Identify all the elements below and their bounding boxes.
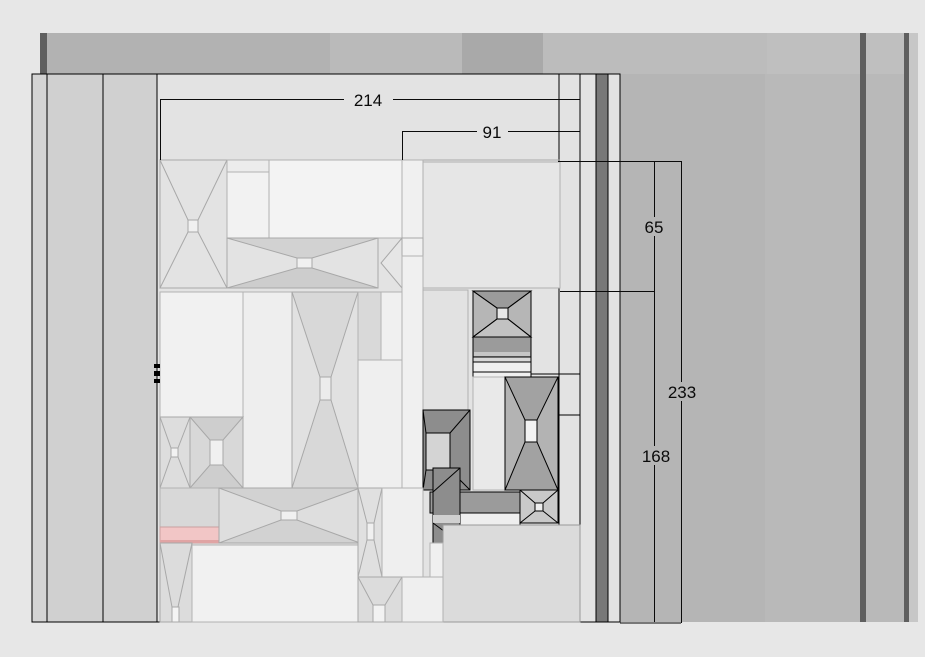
- piece-rect-p[interactable]: [192, 545, 358, 622]
- dim-label-168[interactable]: 168: [642, 447, 670, 466]
- corner-stripe-right-1: [860, 33, 866, 622]
- piece-col-k[interactable]: [402, 256, 423, 488]
- piece-highlighted[interactable]: [160, 527, 219, 543]
- wall-section-stripe[interactable]: [596, 74, 608, 622]
- piece-vhip-2[interactable]: [358, 577, 402, 622]
- cad-viewport[interactable]: 214 91 65 233 168: [0, 0, 925, 657]
- piece-col-h[interactable]: [358, 292, 381, 360]
- piece-col-g[interactable]: [243, 292, 292, 488]
- wall-face-right-2: [765, 74, 918, 622]
- stud-column-1[interactable]: [32, 74, 47, 622]
- piece-col-q[interactable]: [382, 488, 423, 577]
- piece-rect-r[interactable]: [402, 577, 443, 622]
- top-plate-seg-5: [767, 33, 918, 74]
- piece-rect-d[interactable]: [423, 162, 560, 288]
- piece-bowtie-vertical-big[interactable]: [292, 292, 358, 488]
- stud-column-3[interactable]: [103, 74, 157, 622]
- piece-hip-small[interactable]: [520, 490, 558, 523]
- piece-rect-f[interactable]: [160, 292, 243, 417]
- stud-column-2[interactable]: [47, 74, 103, 622]
- piece-col-m[interactable]: [473, 377, 505, 490]
- piece-rect-j[interactable]: [358, 360, 402, 488]
- top-plate-seg-2: [330, 33, 462, 74]
- edge-connector-ticks: [154, 364, 160, 383]
- stud-columns[interactable]: [32, 74, 157, 622]
- corner-stripe-left: [40, 33, 47, 74]
- piece-bowtie-narrow-2[interactable]: [358, 488, 382, 577]
- panel-drawing[interactable]: [32, 74, 620, 622]
- top-plate-seg-4: [543, 33, 767, 74]
- dim-label-91[interactable]: 91: [483, 123, 502, 142]
- dim-label-214[interactable]: 214: [354, 91, 382, 110]
- wall-edge-strip: [909, 33, 918, 622]
- piece-rect-b[interactable]: [269, 160, 402, 238]
- piece-rect-a[interactable]: [227, 172, 269, 238]
- top-plate-seg-3: [462, 33, 543, 74]
- piece-col-l[interactable]: [423, 290, 468, 410]
- piece-bowtie-horizontal-2[interactable]: [219, 488, 360, 543]
- piece-bowtie-horizontal-1[interactable]: [227, 238, 378, 288]
- piece-rect-bottom-right[interactable]: [443, 525, 580, 622]
- piece-band-small[interactable]: [227, 160, 269, 172]
- dim-label-233[interactable]: 233: [668, 383, 696, 402]
- dim-label-65[interactable]: 65: [645, 218, 664, 237]
- piece-vhip-narrow[interactable]: [160, 543, 192, 622]
- piece-col-i[interactable]: [381, 292, 402, 368]
- corner-stripe-right-2: [904, 33, 909, 622]
- piece-hip-square-2[interactable]: [190, 417, 243, 488]
- piece-col-c[interactable]: [402, 160, 423, 238]
- piece-hip-square-dark[interactable]: [473, 291, 531, 337]
- piece-bands[interactable]: [473, 337, 531, 377]
- piece-rect-o[interactable]: [160, 488, 219, 527]
- piece-bowtie-narrow-1[interactable]: [160, 417, 190, 488]
- piece-rect-e[interactable]: [402, 238, 423, 256]
- piece-hip-tall-dark[interactable]: [505, 377, 558, 490]
- app-window: 214 91 65 233 168: [0, 0, 925, 657]
